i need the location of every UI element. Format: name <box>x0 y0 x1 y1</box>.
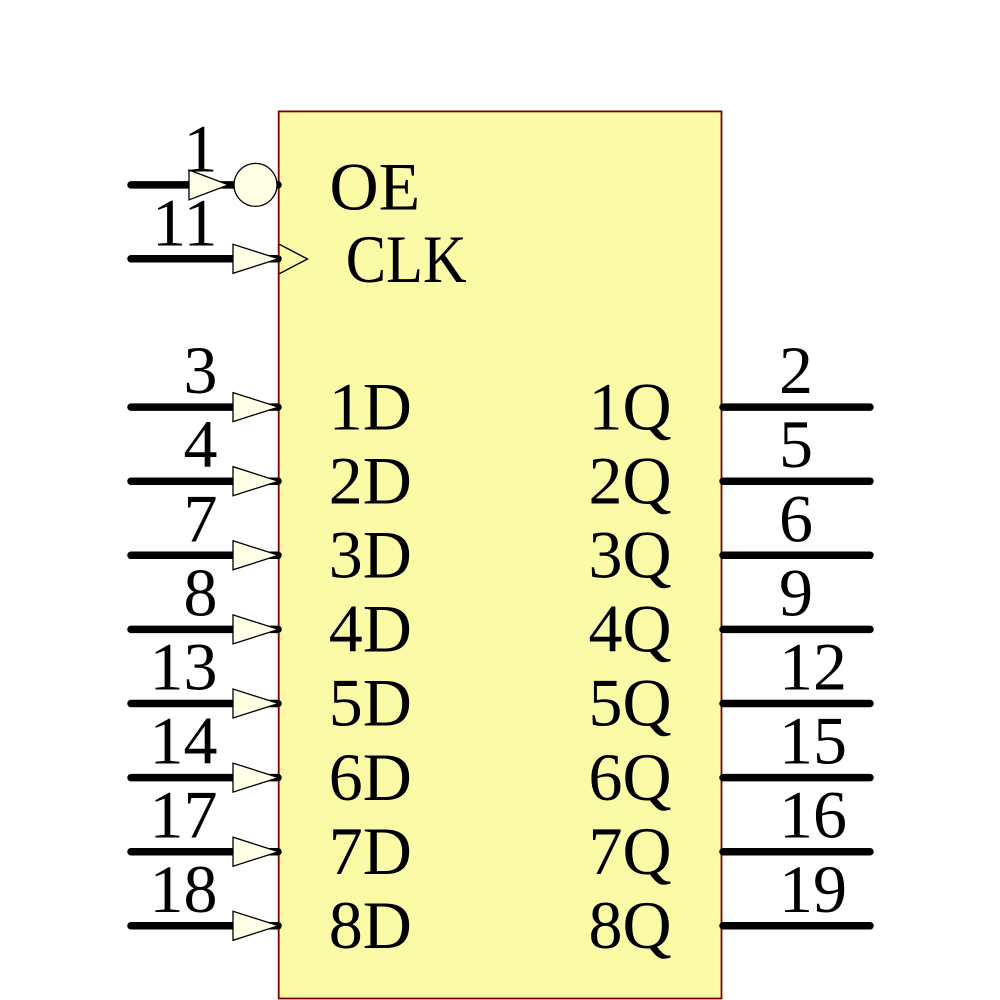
svg-text:4D: 4D <box>329 591 412 667</box>
svg-text:5: 5 <box>779 406 813 482</box>
svg-text:7: 7 <box>184 480 218 556</box>
svg-text:OE: OE <box>330 148 421 224</box>
svg-text:5D: 5D <box>329 665 412 741</box>
svg-text:8Q: 8Q <box>589 887 672 963</box>
svg-text:14: 14 <box>150 703 218 779</box>
svg-text:7D: 7D <box>329 813 412 889</box>
svg-text:18: 18 <box>150 851 218 927</box>
svg-text:13: 13 <box>150 629 218 705</box>
svg-text:4Q: 4Q <box>589 591 672 667</box>
svg-text:6: 6 <box>779 480 813 556</box>
svg-text:2: 2 <box>779 332 813 408</box>
svg-text:3D: 3D <box>329 517 412 593</box>
svg-text:2D: 2D <box>329 442 412 518</box>
svg-text:8D: 8D <box>329 887 412 963</box>
svg-text:2Q: 2Q <box>589 442 672 518</box>
svg-text:6D: 6D <box>329 739 412 815</box>
svg-text:3: 3 <box>184 332 218 408</box>
svg-text:6Q: 6Q <box>589 739 672 815</box>
svg-text:9: 9 <box>779 554 813 630</box>
svg-text:11: 11 <box>152 184 217 260</box>
svg-text:3Q: 3Q <box>589 517 672 593</box>
svg-text:7Q: 7Q <box>589 813 672 889</box>
svg-text:5Q: 5Q <box>589 665 672 741</box>
svg-text:1: 1 <box>184 110 218 186</box>
svg-text:19: 19 <box>779 851 847 927</box>
svg-text:15: 15 <box>779 703 847 779</box>
svg-text:1D: 1D <box>329 368 412 444</box>
svg-text:12: 12 <box>779 629 847 705</box>
svg-text:8: 8 <box>184 554 218 630</box>
svg-text:CLK: CLK <box>346 221 467 297</box>
svg-text:4: 4 <box>184 406 218 482</box>
svg-text:16: 16 <box>779 777 847 853</box>
svg-text:1Q: 1Q <box>589 368 672 444</box>
svg-text:17: 17 <box>150 777 218 853</box>
